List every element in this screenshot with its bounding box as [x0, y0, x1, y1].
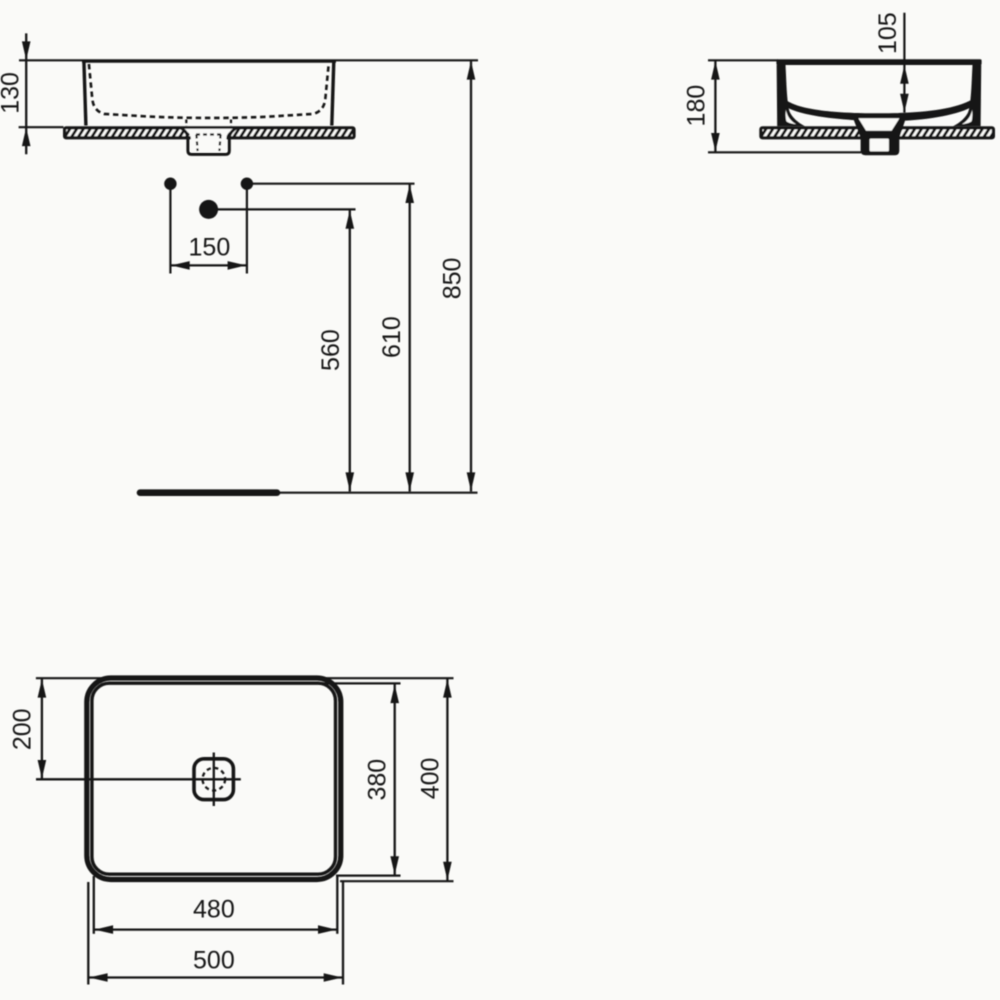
svg-text:850: 850 — [438, 258, 466, 300]
svg-text:130: 130 — [0, 72, 25, 114]
svg-text:105: 105 — [874, 12, 902, 54]
svg-text:380: 380 — [364, 759, 392, 801]
svg-text:500: 500 — [193, 946, 235, 974]
svg-text:150: 150 — [189, 234, 231, 262]
svg-text:560: 560 — [317, 329, 345, 371]
svg-text:480: 480 — [193, 895, 235, 923]
svg-text:400: 400 — [416, 758, 444, 800]
svg-text:610: 610 — [378, 316, 406, 358]
svg-text:200: 200 — [8, 708, 36, 750]
svg-text:180: 180 — [683, 85, 711, 127]
